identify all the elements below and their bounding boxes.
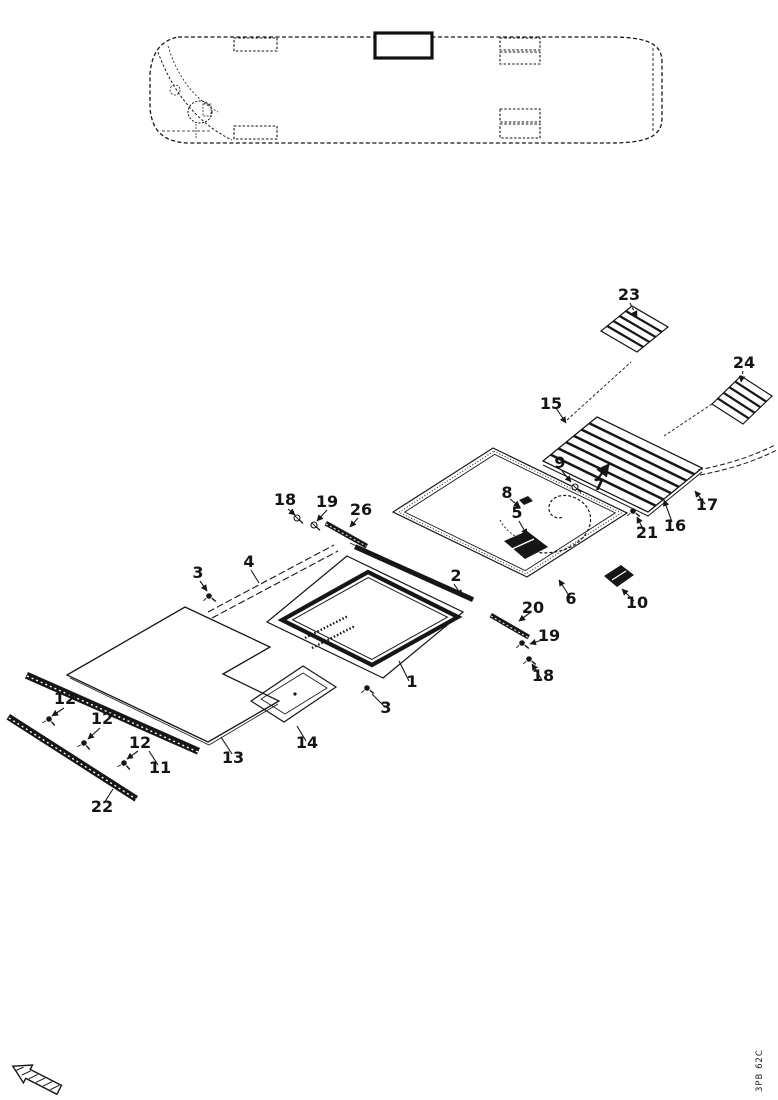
callout-10: 10 <box>626 593 648 612</box>
screw-12-c <box>117 759 131 769</box>
callout-11: 11 <box>149 758 171 777</box>
callout-19-b: 19 <box>538 626 560 645</box>
screw-12-a <box>42 715 56 725</box>
screw-3-a <box>203 593 216 601</box>
callout-12-c: 12 <box>129 733 151 752</box>
manual-page: 23 24 15 18 19 26 3 4 2 9 7 8 5 21 16 17… <box>0 0 778 1100</box>
part-rail-17 <box>698 445 777 475</box>
callout-13: 13 <box>222 748 244 767</box>
front-direction-arrow-icon <box>8 1057 63 1098</box>
callout-12-b: 12 <box>91 709 113 728</box>
callout-8: 8 <box>501 483 512 502</box>
callout-18-b: 18 <box>532 666 554 685</box>
callout-23: 23 <box>618 285 640 304</box>
part-bracket-10 <box>604 565 634 587</box>
exploded-parts-diagram: 23 24 15 18 19 26 3 4 2 9 7 8 5 21 16 17… <box>0 0 778 1100</box>
screw-19-a <box>311 522 320 530</box>
callout-7: 7 <box>593 475 604 494</box>
callout-4: 4 <box>243 552 254 571</box>
callout-17: 17 <box>696 495 718 514</box>
screw-18-b <box>523 656 536 664</box>
bus-roof-outline <box>150 33 662 143</box>
callout-20: 20 <box>522 598 544 617</box>
part-motor-5 <box>504 531 548 559</box>
callout-24: 24 <box>733 353 755 372</box>
callout-22: 22 <box>91 797 113 816</box>
screw-12-b <box>77 739 91 749</box>
callout-6: 6 <box>565 589 576 608</box>
callout-16: 16 <box>664 516 686 535</box>
steering-wheel-outline <box>188 101 212 123</box>
callout-14: 14 <box>296 733 318 752</box>
part-ribbed-panel-15 <box>543 417 702 516</box>
part-frame-1 <box>267 556 463 678</box>
callout-3-b: 3 <box>380 698 391 717</box>
callout-12-a: 12 <box>54 689 76 708</box>
callout-1: 1 <box>406 672 417 691</box>
alignment-dashed-lines <box>567 362 712 436</box>
callout-19-a: 19 <box>316 492 338 511</box>
callout-2: 2 <box>450 566 461 585</box>
doc-code: 3PB 62C <box>755 1049 765 1092</box>
part-frame-6 <box>393 448 627 577</box>
part-ribbed-vent-24 <box>712 376 772 424</box>
screw-3-b <box>361 685 374 693</box>
callout-9: 9 <box>554 453 565 472</box>
callout-leaders <box>52 303 743 803</box>
callout-15: 15 <box>540 394 562 413</box>
part-strip-22 <box>7 714 139 802</box>
callout-21: 21 <box>636 523 658 542</box>
callout-18-a: 18 <box>274 490 296 509</box>
callout-26: 26 <box>350 500 372 519</box>
callout-5: 5 <box>511 503 522 522</box>
part-strip-4 <box>208 545 338 618</box>
roof-hatch-location-rect <box>375 33 432 58</box>
screw-18-a <box>294 515 303 523</box>
part-strip-26 <box>325 521 368 548</box>
callout-3-a: 3 <box>192 563 203 582</box>
screw-19-b <box>516 640 529 648</box>
exploded-view: 23 24 15 18 19 26 3 4 2 9 7 8 5 21 16 17… <box>7 285 778 816</box>
screw-9 <box>572 484 581 492</box>
bus-front-detail <box>158 46 232 140</box>
